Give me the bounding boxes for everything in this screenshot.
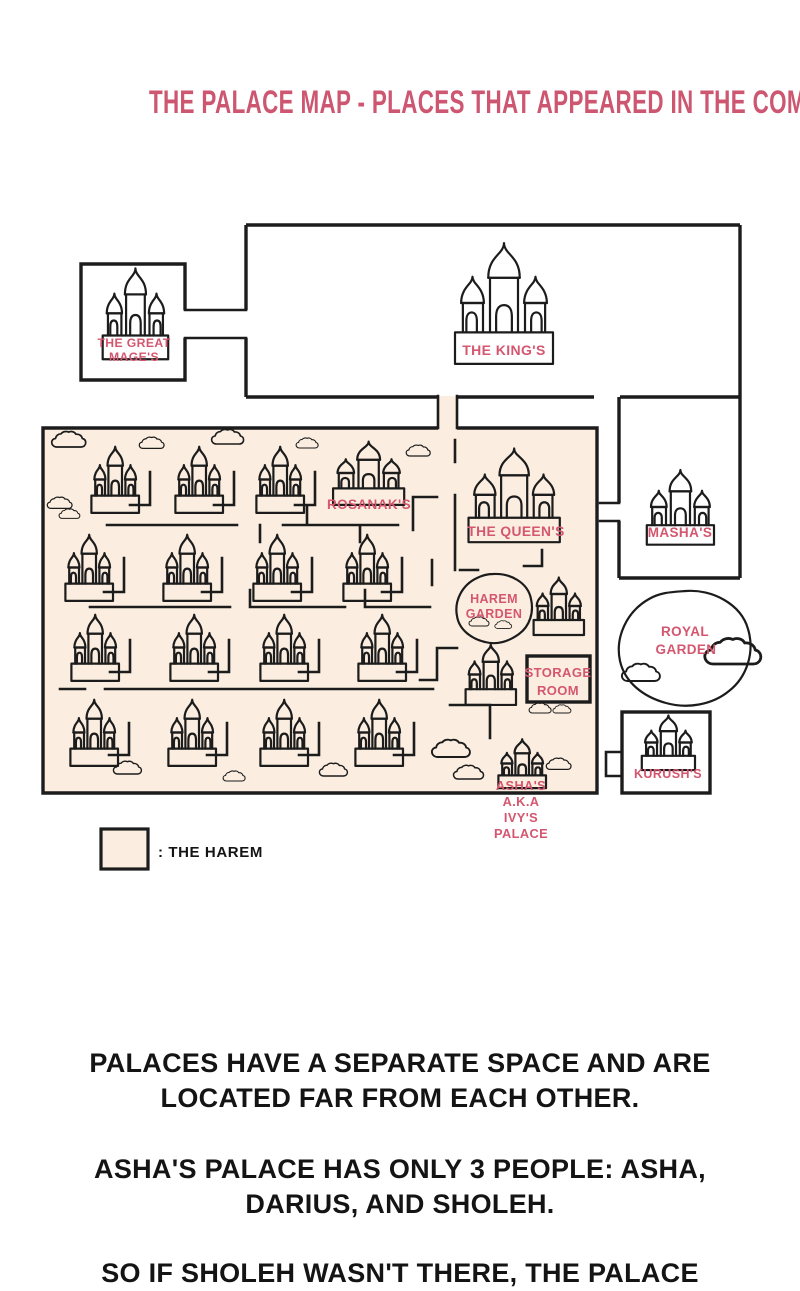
kings-room bbox=[246, 225, 740, 397]
mashas-room bbox=[619, 397, 740, 578]
harem-garden-label: GARDEN bbox=[466, 607, 523, 621]
great-mage-label: THE GREAT bbox=[97, 336, 170, 350]
masha-label: MASHA'S bbox=[648, 525, 713, 540]
palace-icon bbox=[642, 715, 695, 770]
asha-label: ASHA'S bbox=[496, 778, 546, 793]
storage-room-label: ROOM bbox=[537, 683, 579, 698]
great-mage-label: MAGE'S bbox=[109, 350, 159, 364]
king-label: THE KING'S bbox=[462, 342, 546, 358]
royal-garden-label: GARDEN bbox=[656, 642, 717, 657]
caption-paragraph-3: SO IF SHOLEH WASN'T THERE, THE PALACE bbox=[50, 1256, 750, 1291]
caption-paragraph-2: ASHA'S PALACE HAS ONLY 3 PEOPLE: ASHA, D… bbox=[50, 1152, 750, 1222]
royal-garden-label: ROYAL bbox=[661, 624, 709, 639]
masha-door-stubs bbox=[600, 503, 619, 521]
kurush-door-stubs bbox=[606, 752, 622, 776]
storage-room-label: STORAGE bbox=[525, 665, 592, 680]
page-title-text: THE PALACE MAP - PLACES THAT APPEARED IN… bbox=[149, 84, 800, 121]
asha-label: IVY'S bbox=[504, 810, 538, 825]
queen-label: THE QUEEN'S bbox=[467, 524, 564, 539]
legend-swatch bbox=[101, 829, 148, 869]
page-title: THE PALACE MAP - PLACES THAT APPEARED IN… bbox=[0, 84, 800, 121]
kurush-label: KURUSH'S bbox=[634, 767, 702, 781]
rosanak-label: ROSANAK'S bbox=[327, 497, 411, 512]
corridor-mage-king bbox=[185, 310, 246, 338]
harem-corridor-fill bbox=[439, 396, 456, 429]
harem-garden-label: HAREM bbox=[470, 592, 518, 606]
palace-map: THE GREAT MAGE'S THE KING'S ROSANAK'S TH… bbox=[0, 195, 800, 885]
asha-label: PALACE bbox=[494, 826, 548, 841]
asha-label: A.K.A bbox=[503, 794, 540, 809]
legend-label: : THE HAREM bbox=[158, 844, 263, 861]
comic-page: { "title": "THE PALACE MAP - PLACES THAT… bbox=[0, 0, 800, 1280]
caption-paragraph-1: PALACES HAVE A SEPARATE SPACE AND ARE LO… bbox=[50, 1046, 750, 1116]
